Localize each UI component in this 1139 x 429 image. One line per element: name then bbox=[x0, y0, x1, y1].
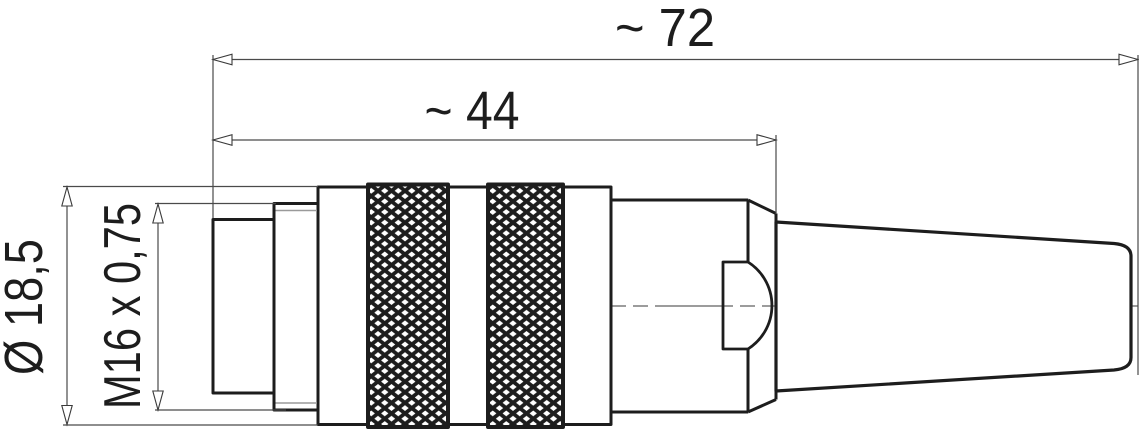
dim-label-diameter: Ø 18,5 bbox=[0, 239, 54, 375]
arrow-front-left bbox=[213, 135, 232, 146]
dim-label-front-length: ~ 44 bbox=[425, 81, 520, 141]
knurl-ring-rear bbox=[488, 185, 563, 428]
rear-chamfer-top bbox=[748, 200, 776, 214]
knurl-ring-front bbox=[368, 185, 448, 428]
main-body bbox=[318, 187, 611, 425]
dim-label-overall-length: ~ 72 bbox=[615, 0, 715, 58]
cable-boot bbox=[776, 222, 1131, 391]
rear-chamfer-bottom bbox=[748, 400, 776, 413]
arrow-diameter-bottom bbox=[62, 406, 72, 425]
arrow-overall-right bbox=[1119, 54, 1138, 65]
arrow-diameter-top bbox=[62, 187, 72, 206]
arrow-thread-top bbox=[153, 204, 163, 223]
connector-dimension-drawing: ~ 72 ~ 44 Ø 18,5 M16 x 0,75 bbox=[0, 0, 1139, 429]
coupling-collar bbox=[274, 204, 318, 411]
arrow-overall-left bbox=[213, 54, 232, 65]
dim-label-thread: M16 x 0,75 bbox=[94, 203, 152, 409]
arrow-front-right bbox=[757, 135, 776, 146]
front-thread-section bbox=[213, 220, 274, 394]
arrow-thread-bottom bbox=[153, 391, 163, 410]
technical-drawing-canvas: ~ 72 ~ 44 Ø 18,5 M16 x 0,75 bbox=[0, 0, 1139, 429]
